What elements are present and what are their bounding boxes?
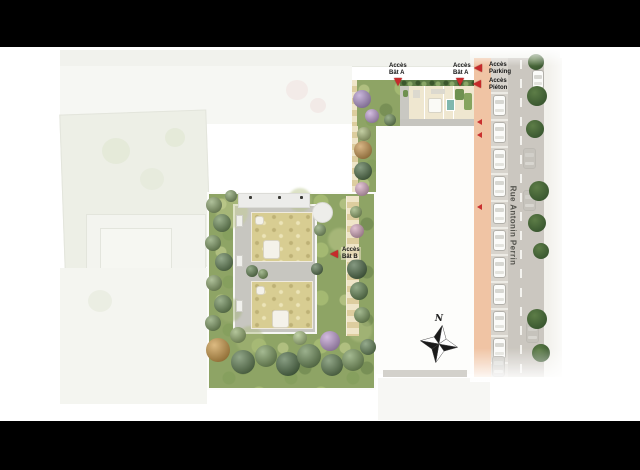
tree-icon [206,338,230,362]
car-icon [493,95,506,116]
tree-icon [321,354,343,376]
bench [236,300,243,312]
batA-planter [455,89,464,100]
tree-icon [384,114,396,126]
tree-icon [255,345,277,367]
parking-separator [491,335,508,337]
tree-icon [350,282,368,300]
acces-pieton-arrow-icon [473,80,481,88]
acces-bat-a-1-arrow-icon [394,78,402,86]
tree-icon [205,235,221,251]
neighbor-bottom-parcel [378,378,490,420]
batB-round-canopy [312,202,333,223]
street-right-fade [548,48,570,383]
neighbor-tree-faint [102,138,130,164]
parking-separator [491,119,508,121]
acces-parking-arrow-icon [474,64,482,72]
tree-icon [297,344,321,368]
tree-icon [365,109,379,123]
skylight [255,216,264,225]
parking-separator [491,281,508,283]
parcel-south-wall [383,370,467,377]
car-icon [493,284,506,305]
parking-separator [491,200,508,202]
tree-icon [357,127,371,141]
skylight [263,240,280,259]
tree-icon [213,214,231,232]
label-acces-bat-a-1: Accès Bât A [389,63,407,76]
parking-separator [491,173,508,175]
label-acces-pieton: Accès Piéton [489,78,507,91]
tree-icon [342,349,364,371]
street-sidewalk-left [474,58,491,377]
batA-pool [446,99,455,111]
entrance-chevron-icon [477,132,482,138]
acces-bat-a-2-arrow-icon [456,78,464,86]
neighbor-blossom [286,80,308,100]
tree-icon [311,263,323,275]
label-acces-parking: Accès Parking [489,62,511,75]
batA-wall [424,86,425,119]
parking-separator [491,146,508,148]
street-tree-icon [526,120,544,138]
batA-planter [403,90,408,97]
car-icon [493,122,506,143]
parking-separator [491,227,508,229]
tree-icon [206,197,222,213]
label-acces-bat-b: Accès Bât B [341,247,361,260]
batA-walkway [400,119,474,126]
car-icon [493,176,506,197]
tree-icon [293,331,307,345]
parking-separator [491,92,508,94]
neighbor-bottomleft-parcel [60,268,207,404]
street-top-fade [470,48,570,66]
tree-icon [225,190,237,202]
letterbox-bottom [0,421,640,470]
neighbor-blossom [310,98,326,113]
car-icon [523,148,536,169]
site-plan-image: Rue Antonin Perrin [0,0,640,470]
street-tree-icon [528,214,546,232]
street-bottom-fade [470,348,570,382]
tree-icon [231,350,255,374]
tree-icon [347,259,367,279]
roof-vent [249,196,252,199]
label-acces-bat-a-2: Accès Bât A [453,63,471,76]
tree-icon [320,331,340,351]
street-tree-icon [527,86,547,106]
tree-icon [258,269,268,279]
tree-icon [354,307,370,323]
letterbox-top [0,0,640,47]
street-tree-icon [527,309,547,329]
street-name-label: Rue Antonin Perrin [507,176,518,276]
tree-icon [353,90,371,108]
neighbor-tree-faint [88,290,112,312]
tree-icon [354,141,372,159]
batA-planter [464,93,472,110]
bench [236,255,243,267]
compass-rose: N [416,314,462,368]
parking-separator [491,254,508,256]
compass-star-icon [417,322,461,366]
parking-separator [491,308,508,310]
car-icon [493,203,506,224]
car-icon [493,311,506,332]
tree-icon [354,162,372,180]
street-center-dashes [520,60,522,375]
tree-icon [350,224,364,238]
tree-icon [205,315,221,331]
street-tree-icon [529,181,549,201]
tree-icon [360,339,376,355]
batA-furniture [413,90,420,98]
street-tree-icon [533,243,549,259]
car-icon [493,149,506,170]
tree-icon [314,224,326,236]
skylight [256,286,265,295]
car-icon [493,257,506,278]
tree-icon [246,265,258,277]
roof-vent [278,196,281,199]
tree-icon [355,182,369,196]
entrance-chevron-icon [477,204,482,210]
batA-furniture [428,98,442,113]
neighbor-tree-faint [165,128,185,147]
neighbor-tree-faint [140,168,164,190]
bench [236,215,243,227]
acces-bat-b-arrow-icon [330,250,338,258]
tree-icon [214,295,232,313]
car-icon [493,230,506,251]
roof-vent [300,196,303,199]
entrance-chevron-icon [477,119,482,125]
tree-icon [206,275,222,291]
tree-icon [215,253,233,271]
tree-icon [350,206,362,218]
batA-furniture [431,89,445,94]
skylight [272,310,289,328]
tree-icon [230,327,246,343]
